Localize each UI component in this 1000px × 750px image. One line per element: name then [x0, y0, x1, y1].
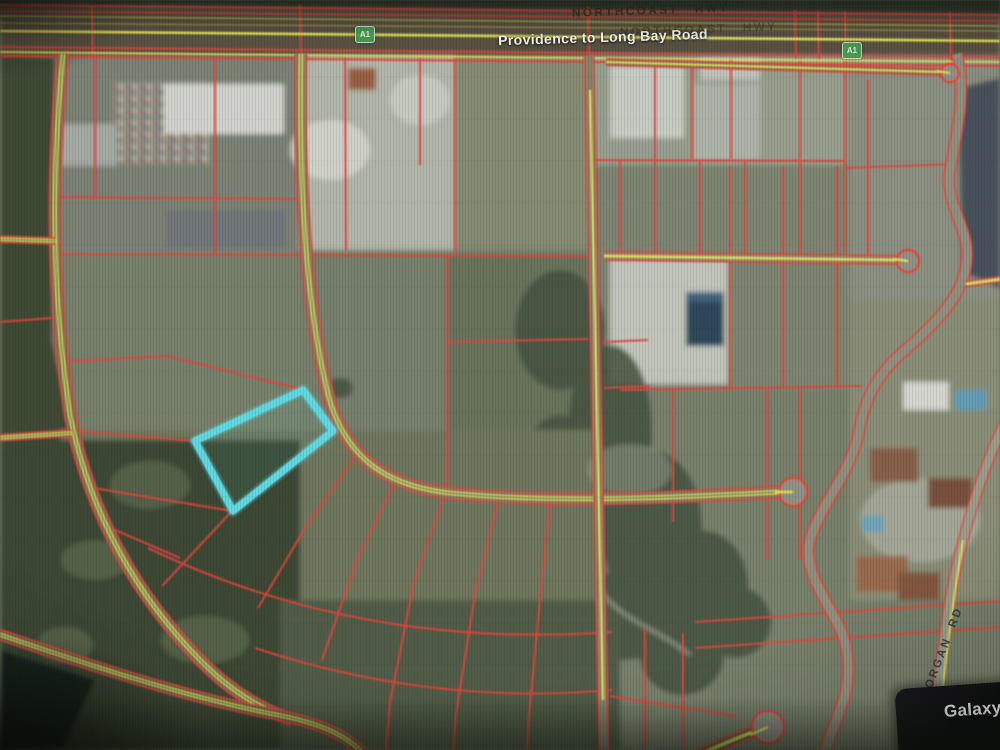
- galaxy-watermark: Galaxy S: [894, 679, 1000, 750]
- route-shield-text: A1: [847, 46, 857, 55]
- route-shield-a1-east: A1: [842, 42, 862, 59]
- aerial-parcel-map: [0, 0, 1000, 750]
- route-shield-a1-west: A1: [355, 26, 375, 43]
- galaxy-watermark-text: Galaxy S: [943, 695, 1000, 722]
- map-viewport[interactable]: NORTHCOAST HWY NORTHCOAST HWY Providence…: [0, 0, 1000, 750]
- route-shield-text: A1: [360, 30, 370, 39]
- mid-right-road: [604, 256, 897, 260]
